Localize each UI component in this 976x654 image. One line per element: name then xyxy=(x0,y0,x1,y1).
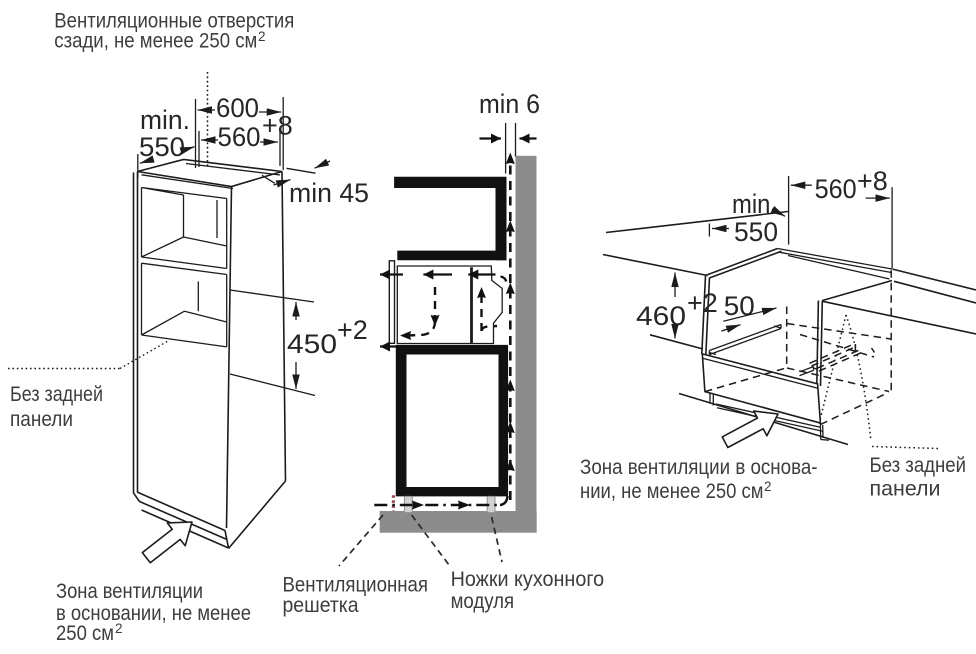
svg-text:min.: min. xyxy=(140,105,190,135)
svg-text:560: 560 xyxy=(218,122,261,152)
svg-text:250 см: 250 см xyxy=(56,622,114,645)
svg-text:панели: панели xyxy=(870,478,941,501)
svg-text:нии, не менее 250 см: нии, не менее 250 см xyxy=(580,480,764,503)
svg-text:модуля: модуля xyxy=(451,590,514,613)
svg-text:2: 2 xyxy=(115,621,123,636)
svg-text:460: 460 xyxy=(636,301,686,331)
svg-text:2: 2 xyxy=(258,29,266,44)
svg-text:+2: +2 xyxy=(337,315,368,345)
svg-text:min 45: min 45 xyxy=(289,178,369,208)
svg-text:сзади, не менее 250 см: сзади, не менее 250 см xyxy=(54,30,257,53)
svg-text:550: 550 xyxy=(139,132,185,162)
svg-text:решетка: решетка xyxy=(283,594,359,617)
svg-text:2: 2 xyxy=(764,479,772,494)
svg-text:Зона вентиляции в основа-: Зона вентиляции в основа- xyxy=(580,456,818,479)
svg-text:+8: +8 xyxy=(857,166,888,196)
svg-text:550: 550 xyxy=(734,217,778,247)
svg-text:600: 600 xyxy=(216,93,259,123)
svg-text:50: 50 xyxy=(724,291,755,321)
svg-text:Без задней: Без задней xyxy=(870,454,967,477)
svg-text:min.: min. xyxy=(732,189,777,219)
svg-text:560: 560 xyxy=(815,174,857,204)
svg-text:min 6: min 6 xyxy=(479,89,540,119)
svg-text:Ножки кухонного: Ножки кухонного xyxy=(451,568,604,591)
svg-text:Без задней: Без задней xyxy=(10,383,103,406)
svg-text:панели: панели xyxy=(10,408,73,431)
svg-text:Зона вентиляции: Зона вентиляции xyxy=(56,580,203,603)
svg-text:450: 450 xyxy=(287,329,337,359)
svg-text:+8: +8 xyxy=(262,111,293,141)
svg-text:+2: +2 xyxy=(687,288,718,318)
